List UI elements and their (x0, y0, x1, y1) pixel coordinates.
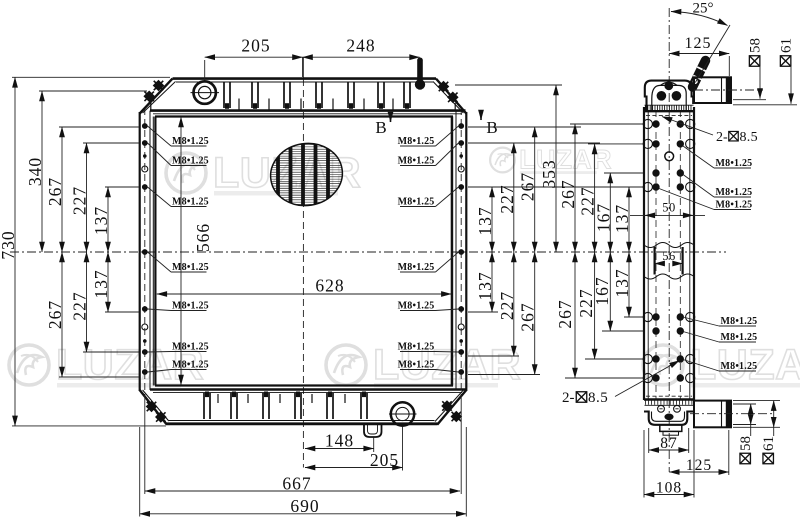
svg-text:58: 58 (748, 38, 764, 53)
svg-text:8.5: 8.5 (740, 130, 758, 145)
svg-text:137: 137 (91, 206, 111, 235)
svg-text:137: 137 (612, 204, 632, 233)
svg-text:M8•1.25: M8•1.25 (716, 158, 753, 169)
svg-text:167: 167 (594, 203, 614, 232)
svg-text:50: 50 (662, 201, 676, 215)
svg-text:353: 353 (539, 159, 559, 188)
svg-text:227: 227 (70, 291, 90, 320)
svg-text:M8•1.25: M8•1.25 (172, 156, 209, 167)
svg-text:2-: 2- (562, 390, 575, 406)
svg-text:227: 227 (576, 288, 596, 317)
svg-text:148: 148 (325, 431, 354, 451)
svg-text:690: 690 (290, 496, 319, 516)
svg-text:227: 227 (70, 186, 90, 215)
svg-text:628: 628 (315, 276, 344, 296)
svg-text:227: 227 (497, 184, 517, 213)
svg-text:M8•1.25: M8•1.25 (398, 301, 435, 312)
svg-text:267: 267 (45, 177, 65, 206)
svg-text:M8•1.25: M8•1.25 (172, 360, 209, 371)
svg-text:248: 248 (346, 36, 375, 56)
svg-text:137: 137 (475, 271, 495, 300)
svg-text:B: B (375, 118, 386, 137)
svg-text:58: 58 (738, 436, 754, 451)
svg-text:137: 137 (612, 268, 632, 297)
svg-text:267: 267 (558, 179, 578, 208)
svg-text:8.5: 8.5 (588, 390, 608, 406)
svg-text:61: 61 (779, 38, 795, 53)
svg-text:125: 125 (685, 35, 712, 52)
svg-text:M8•1.25: M8•1.25 (398, 197, 435, 208)
svg-text:56: 56 (662, 249, 676, 263)
svg-text:137: 137 (91, 269, 111, 298)
svg-text:LUZAR: LUZAR (373, 341, 521, 389)
svg-text:M8•1.25: M8•1.25 (716, 200, 753, 211)
svg-text:125: 125 (686, 457, 712, 474)
svg-text:M8•1.25: M8•1.25 (172, 262, 209, 273)
svg-text:227: 227 (497, 291, 517, 320)
svg-text:137: 137 (475, 206, 495, 235)
svg-text:M8•1.25: M8•1.25 (398, 262, 435, 273)
svg-text:205: 205 (241, 36, 270, 56)
svg-text:LUZAR: LUZAR (519, 145, 612, 175)
svg-text:205: 205 (370, 450, 399, 470)
svg-text:566: 566 (193, 223, 213, 252)
svg-text:267: 267 (555, 299, 575, 328)
svg-text:M8•1.25: M8•1.25 (172, 301, 209, 312)
svg-text:M8•1.25: M8•1.25 (172, 197, 209, 208)
svg-text:730: 730 (0, 230, 18, 259)
svg-text:267: 267 (518, 172, 538, 201)
svg-text:2-: 2- (716, 130, 728, 145)
svg-text:340: 340 (25, 157, 45, 186)
svg-text:61: 61 (761, 436, 777, 451)
svg-text:267: 267 (45, 300, 65, 329)
svg-text:87: 87 (660, 435, 678, 452)
svg-text:M8•1.25: M8•1.25 (721, 332, 758, 343)
svg-text:M8•1.25: M8•1.25 (716, 187, 753, 198)
svg-text:B: B (486, 118, 497, 137)
svg-text:25°: 25° (693, 1, 714, 17)
svg-text:667: 667 (282, 473, 311, 493)
svg-text:M8•1.25: M8•1.25 (398, 360, 435, 371)
svg-text:M8•1.25: M8•1.25 (398, 342, 435, 353)
svg-text:108: 108 (656, 479, 682, 496)
svg-text:M8•1.25: M8•1.25 (172, 342, 209, 353)
svg-text:M8•1.25: M8•1.25 (398, 156, 435, 167)
svg-text:M8•1.25: M8•1.25 (721, 361, 758, 372)
svg-text:M8•1.25: M8•1.25 (398, 136, 435, 147)
svg-text:M8•1.25: M8•1.25 (721, 316, 758, 327)
svg-text:267: 267 (518, 302, 538, 331)
svg-text:M8•1.25: M8•1.25 (172, 136, 209, 147)
